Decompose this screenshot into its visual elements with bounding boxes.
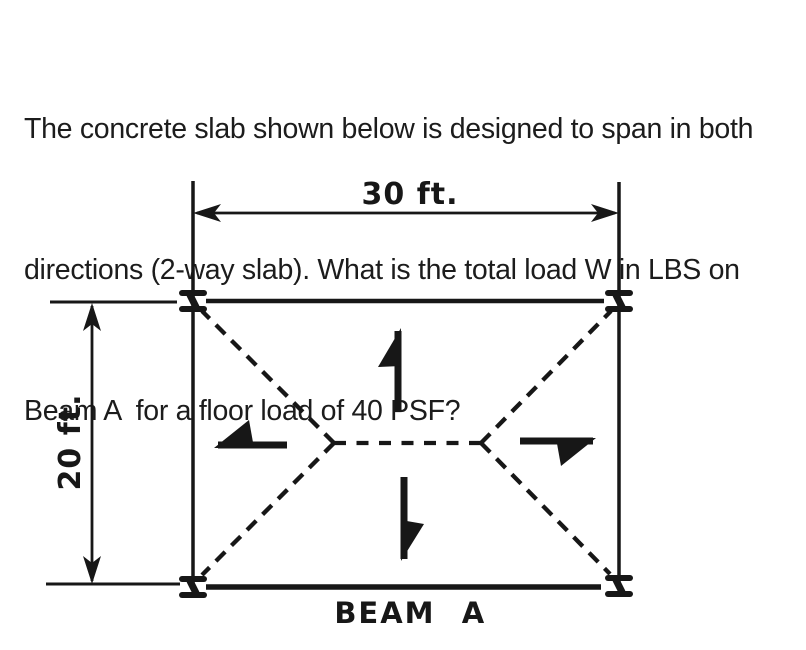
column-icon bbox=[182, 579, 204, 595]
yield-line-bottom-right bbox=[481, 443, 610, 574]
column-icon bbox=[608, 293, 630, 309]
slab-diagram: 30 ft. 20 ft. BEAM A bbox=[0, 0, 806, 650]
width-dimension-label: 30 ft. bbox=[362, 177, 459, 212]
beam-a-label-word: BEAM bbox=[334, 596, 435, 630]
question-page: The concrete slab shown below is designe… bbox=[0, 0, 806, 650]
arrow-down-icon bbox=[401, 477, 424, 561]
width-dimension: 30 ft. bbox=[193, 177, 619, 222]
arrow-right-icon bbox=[520, 438, 596, 466]
column-icon bbox=[182, 293, 204, 309]
beam-a-label-letter: A bbox=[462, 596, 486, 630]
beam-a-label: BEAM A bbox=[334, 596, 486, 630]
yield-line-top-left bbox=[202, 311, 334, 443]
height-dimension-label: 20 ft. bbox=[53, 394, 88, 491]
column-icon bbox=[608, 578, 630, 594]
yield-line-bottom-left bbox=[202, 443, 334, 575]
arrow-up-icon bbox=[378, 328, 401, 412]
yield-line-top-right bbox=[481, 311, 611, 443]
arrow-left-icon bbox=[214, 420, 287, 448]
height-dimension: 20 ft. bbox=[46, 302, 180, 584]
